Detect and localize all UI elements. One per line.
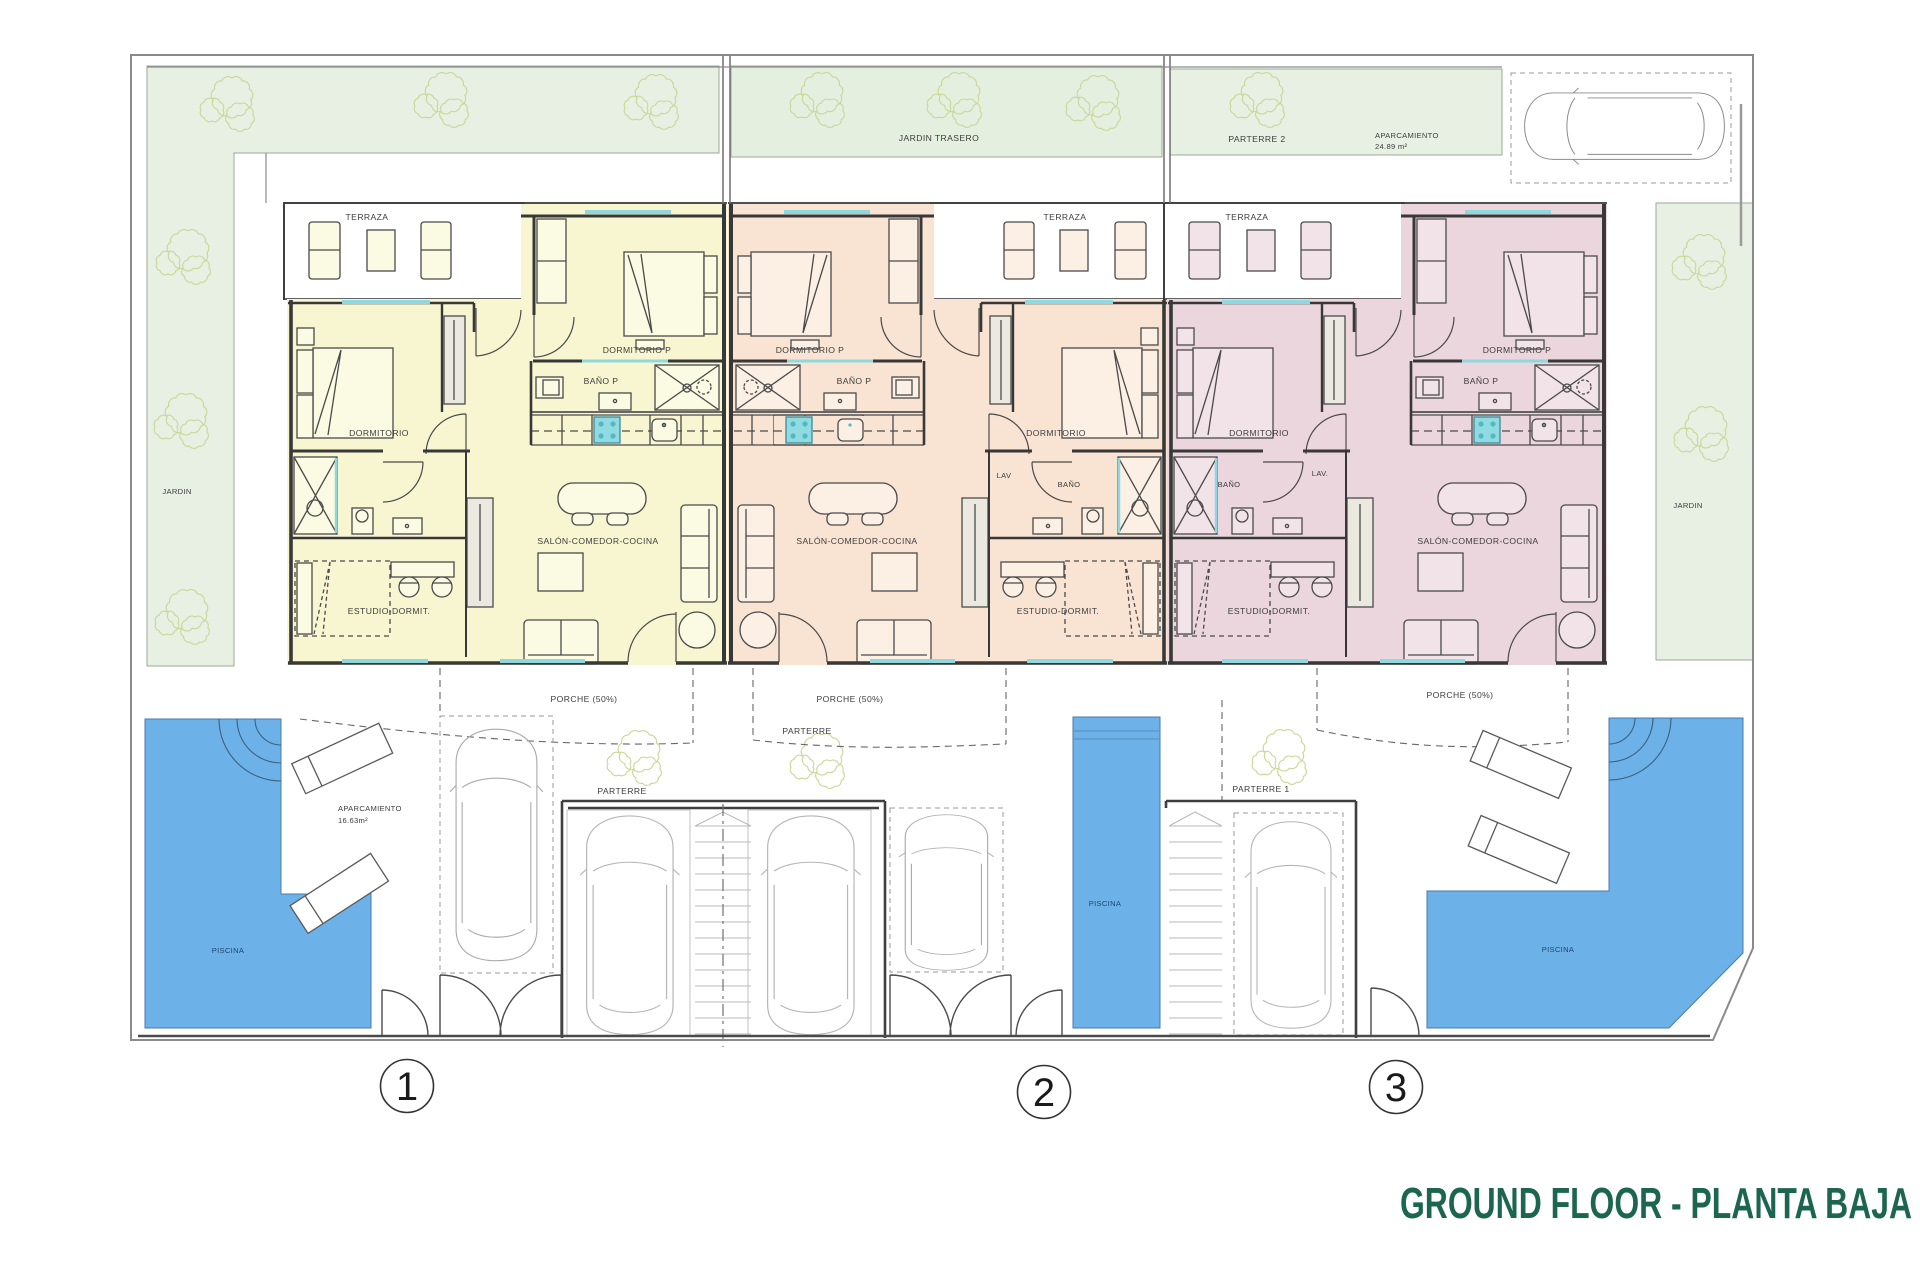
svg-text:2: 2: [1033, 1071, 1055, 1115]
svg-text:DORMITORIO P: DORMITORIO P: [1483, 345, 1552, 355]
svg-text:LAV.: LAV.: [1312, 469, 1328, 478]
svg-text:GROUND FLOOR - PLANTA BAJA: GROUND FLOOR - PLANTA BAJA: [1400, 1179, 1912, 1228]
svg-text:JARDIN: JARDIN: [162, 487, 191, 496]
svg-text:24.89 m²: 24.89 m²: [1375, 142, 1408, 151]
svg-text:TERRAZA: TERRAZA: [346, 212, 389, 222]
svg-text:BAÑO P: BAÑO P: [1464, 376, 1499, 386]
svg-text:TERRAZA: TERRAZA: [1226, 212, 1269, 222]
svg-text:PORCHE (50%): PORCHE (50%): [551, 694, 618, 704]
svg-text:APARCAMIENTO: APARCAMIENTO: [1375, 131, 1439, 140]
svg-text:DORMITORIO P: DORMITORIO P: [776, 345, 845, 355]
svg-text:PARTERRE 2: PARTERRE 2: [1228, 134, 1285, 144]
svg-text:1: 1: [396, 1065, 418, 1109]
svg-text:SALÓN-COMEDOR-COCINA: SALÓN-COMEDOR-COCINA: [796, 536, 917, 546]
svg-text:APARCAMIENTO: APARCAMIENTO: [338, 804, 402, 813]
svg-text:DORMITORIO: DORMITORIO: [349, 428, 409, 438]
svg-text:PORCHE (50%): PORCHE (50%): [1427, 690, 1494, 700]
svg-text:ESTUDIO-DORMIT.: ESTUDIO-DORMIT.: [1017, 606, 1099, 616]
svg-text:PARTERRE 1: PARTERRE 1: [1232, 784, 1289, 794]
svg-text:JARDIN TRASERO: JARDIN TRASERO: [899, 133, 979, 143]
svg-text:BAÑO: BAÑO: [1218, 480, 1241, 489]
svg-text:DORMITORIO: DORMITORIO: [1229, 428, 1289, 438]
svg-text:PISCINA: PISCINA: [1542, 945, 1575, 954]
svg-text:ESTUDIO-DORMIT.: ESTUDIO-DORMIT.: [348, 606, 430, 616]
svg-text:SALÓN-COMEDOR-COCINA: SALÓN-COMEDOR-COCINA: [537, 536, 658, 546]
svg-text:ESTUDIO-DORMIT.: ESTUDIO-DORMIT.: [1228, 606, 1310, 616]
svg-text:PARTERRE: PARTERRE: [782, 726, 831, 736]
svg-text:LAV: LAV: [997, 471, 1012, 480]
svg-text:3: 3: [1385, 1066, 1407, 1110]
svg-text:PISCINA: PISCINA: [212, 946, 245, 955]
svg-text:PORCHE (50%): PORCHE (50%): [817, 694, 884, 704]
svg-text:BAÑO: BAÑO: [1058, 480, 1081, 489]
svg-text:SALÓN-COMEDOR-COCINA: SALÓN-COMEDOR-COCINA: [1417, 536, 1538, 546]
svg-text:DORMITORIO: DORMITORIO: [1026, 428, 1086, 438]
svg-text:PISCINA: PISCINA: [1089, 899, 1122, 908]
svg-text:BAÑO P: BAÑO P: [837, 376, 872, 386]
svg-text:JARDIN: JARDIN: [1673, 501, 1702, 510]
svg-text:16.63m²: 16.63m²: [338, 816, 368, 825]
svg-text:PARTERRE: PARTERRE: [597, 786, 646, 796]
svg-text:DORMITORIO P: DORMITORIO P: [603, 345, 672, 355]
svg-text:BAÑO P: BAÑO P: [584, 376, 619, 386]
svg-text:TERRAZA: TERRAZA: [1044, 212, 1087, 222]
